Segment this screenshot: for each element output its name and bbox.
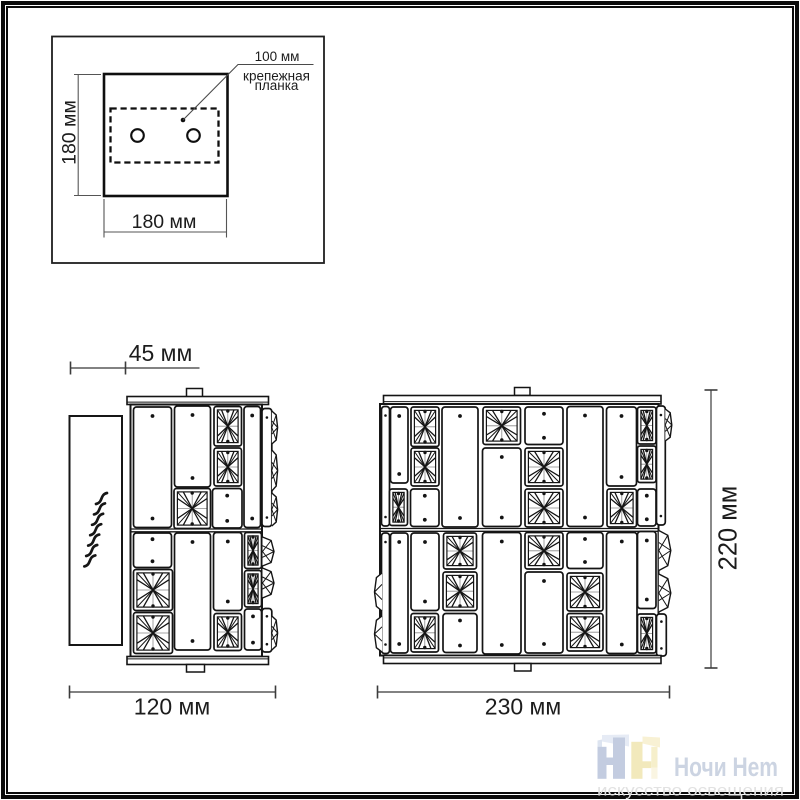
svg-text:планка: планка — [255, 78, 299, 93]
svg-text:120 мм: 120 мм — [134, 694, 210, 720]
svg-text:100 мм: 100 мм — [255, 49, 300, 64]
svg-text:Ночи Неm: Ночи Неm — [674, 752, 778, 782]
svg-text:180 мм: 180 мм — [132, 211, 197, 233]
svg-text:220 мм: 220 мм — [715, 486, 743, 571]
svg-text:45 мм: 45 мм — [129, 340, 193, 366]
svg-text:искусство освещения: искусство освещения — [597, 783, 784, 800]
svg-text:180 мм: 180 мм — [59, 100, 81, 165]
svg-text:230 мм: 230 мм — [485, 694, 561, 720]
